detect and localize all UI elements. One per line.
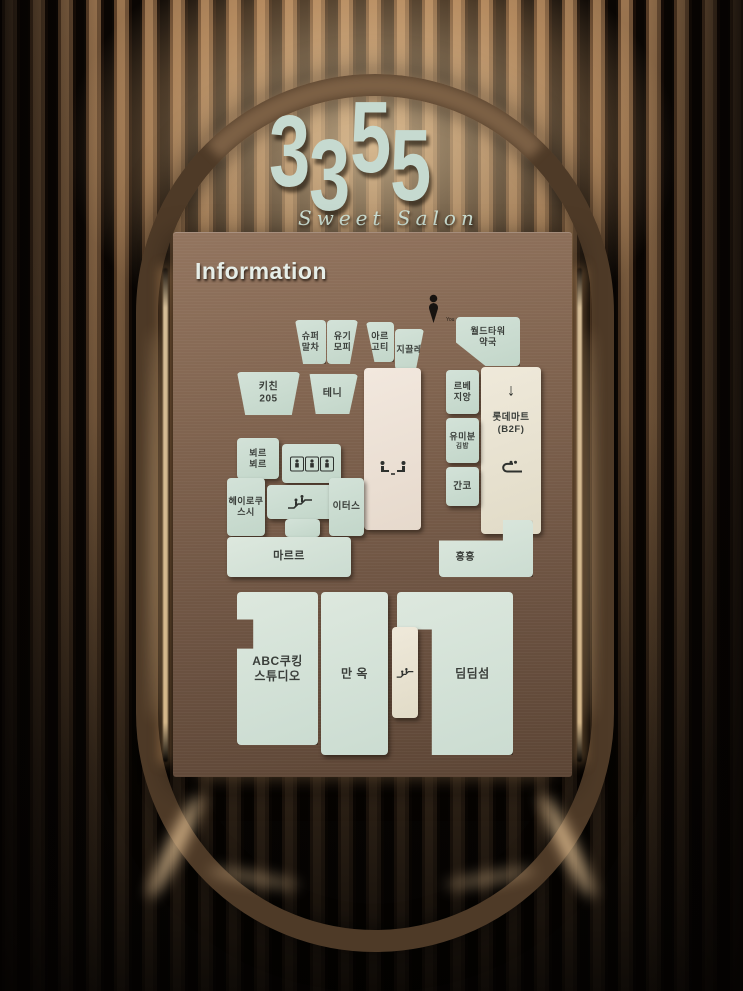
elevators-icon <box>290 456 334 471</box>
store-giclee-label: 지끌레 <box>396 344 422 355</box>
store-super-matcha-label: 슈퍼말차 <box>302 331 320 354</box>
store-areu-goti: 아르고티 <box>366 322 394 362</box>
escalator-block-stub <box>285 519 320 537</box>
escalator-strip <box>392 627 418 718</box>
escalator-up-icon <box>287 494 313 510</box>
logo-digit: 3 <box>269 100 307 201</box>
store-lotte-mart-label: 롯데마트(B2F) <box>493 412 530 436</box>
store-manok: 만 옥 <box>321 592 388 755</box>
panel-title: Information <box>195 258 327 285</box>
escalator-small-icon <box>396 667 414 679</box>
store-abc-cooking-studio: ABC쿠킹스튜디오 <box>237 592 318 745</box>
store-beurre-beurre: 뵈르뵈르 <box>237 438 279 479</box>
store-ganko: 간코 <box>446 467 479 506</box>
down-arrow-icon: ↓ <box>507 382 516 399</box>
store-heiroku-sushi-label: 헤이로쿠스시 <box>228 496 263 519</box>
information-panel: Information You are here! 슈퍼말차유기모피아르고티지끌… <box>173 232 572 777</box>
store-kitchen-205-label: 키친205 <box>259 381 278 406</box>
led-strip-right <box>577 268 582 762</box>
store-ganko-label: 간코 <box>453 481 471 493</box>
led-glow-right <box>585 330 593 720</box>
store-teni-label: 테니 <box>323 388 342 401</box>
store-mareuleu: 마르르 <box>227 537 351 577</box>
store-le-be-jiang: 르베지앙 <box>446 370 479 414</box>
logo-3355: 3355 Sweet Salon <box>268 98 488 248</box>
store-yumibun-gimbap-label: 유미분김밥 <box>449 431 475 450</box>
scene: 3355 Sweet Salon Information You are her… <box>0 0 743 991</box>
escalator-u-icon <box>498 461 524 474</box>
logo-number: 3355 <box>268 98 488 176</box>
store-yugi-mopi: 유기모피 <box>327 320 358 364</box>
person-marker-icon <box>425 311 442 328</box>
store-abc-cooking-studio-label: ABC쿠킹스튜디오 <box>252 654 303 684</box>
store-world-tower-pharmacy: 월드타워약국 <box>456 317 520 366</box>
store-super-matcha: 슈퍼말차 <box>295 320 326 364</box>
escalator-block <box>267 485 333 519</box>
store-hong-hong-label: 홍홍 <box>456 551 475 564</box>
store-lotte-mart: 롯데마트(B2F)↓ <box>481 367 541 534</box>
store-world-tower-pharmacy-label: 월드타워약국 <box>470 325 505 348</box>
corridor-hall <box>364 368 421 530</box>
store-eaters-label: 이터스 <box>333 501 361 513</box>
logo-digit: 5 <box>350 86 388 187</box>
store-yugi-mopi-label: 유기모피 <box>334 331 352 354</box>
store-mareuleu-label: 마르르 <box>273 550 305 564</box>
store-le-be-jiang-label: 르베지앙 <box>454 381 472 404</box>
facing-seats-icon <box>378 460 408 476</box>
led-glow-left <box>151 330 159 720</box>
store-heiroku-sushi: 헤이로쿠스시 <box>227 478 265 536</box>
logo-digit: 5 <box>390 114 428 215</box>
store-areu-goti-label: 아르고티 <box>371 331 389 354</box>
store-teni: 테니 <box>307 374 358 414</box>
store-yumibun-gimbap: 유미분김밥 <box>446 418 479 463</box>
led-strip-left <box>163 268 168 762</box>
store-giclee: 지끌레 <box>395 329 424 370</box>
store-eaters: 이터스 <box>329 478 364 536</box>
store-manok-label: 만 옥 <box>341 666 368 681</box>
store-dimdimsum-label: 딤딤섬 <box>455 666 490 681</box>
store-kitchen-205: 키친205 <box>237 372 300 415</box>
logo-subtitle: Sweet Salon <box>298 206 479 230</box>
store-beurre-beurre-label: 뵈르뵈르 <box>249 447 267 470</box>
